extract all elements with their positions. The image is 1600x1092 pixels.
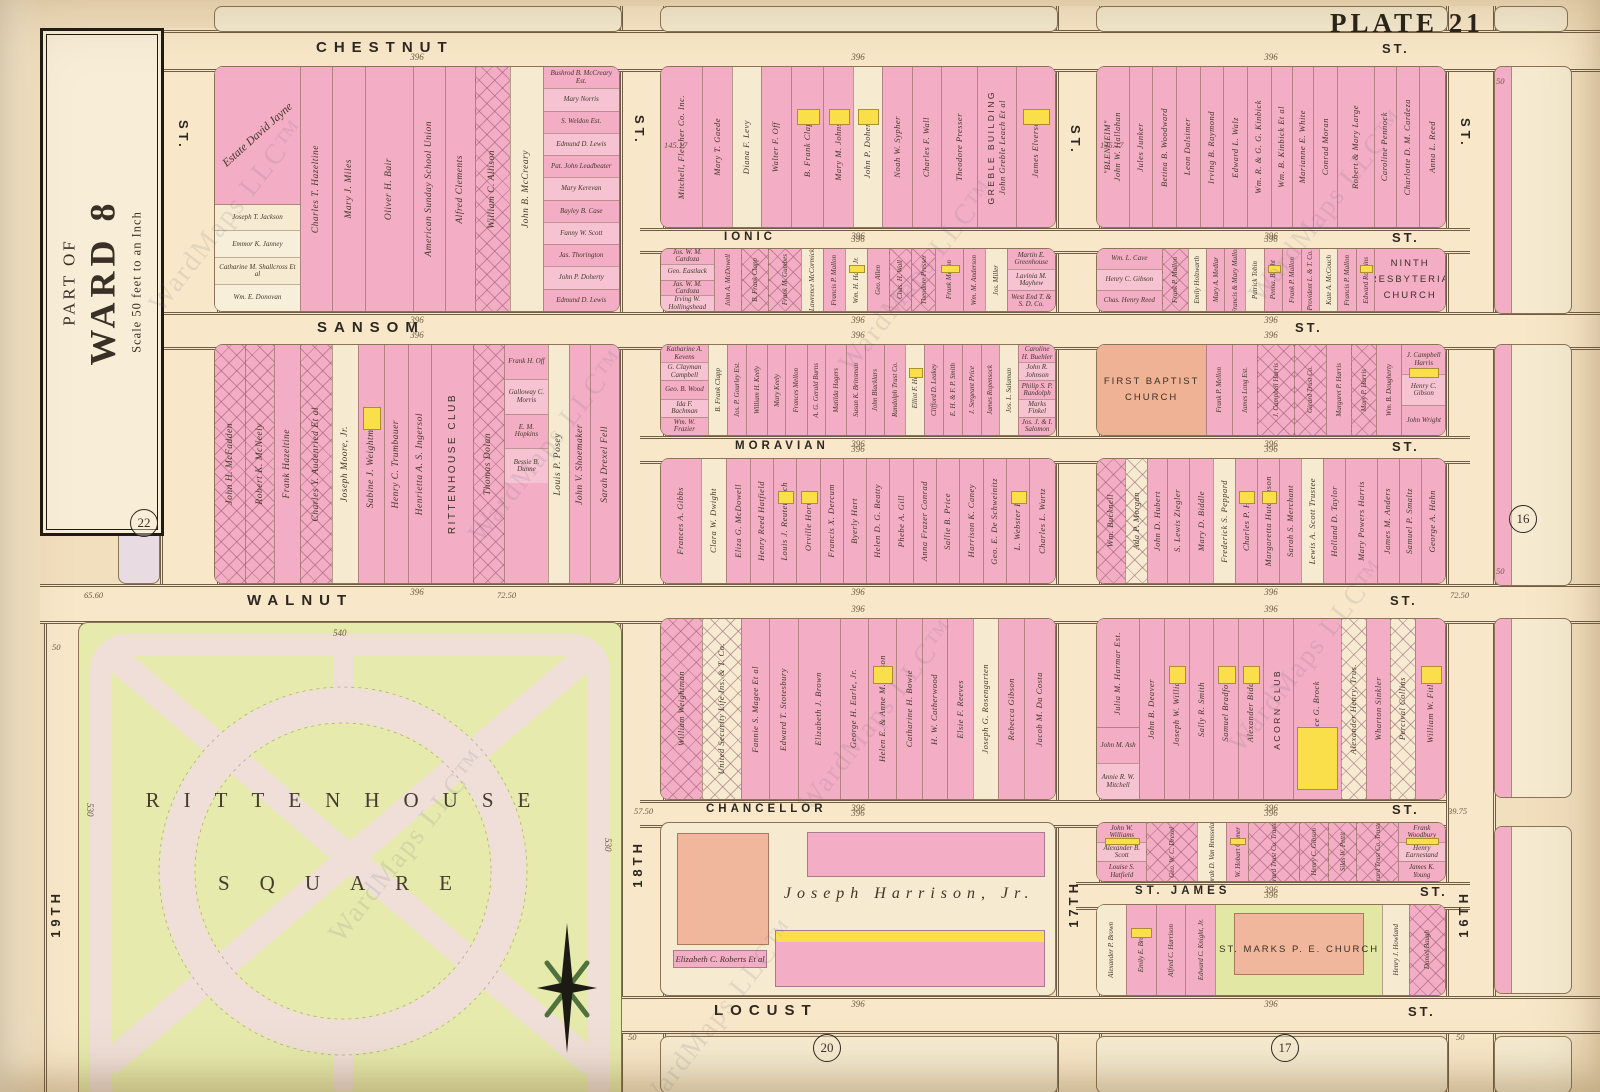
lot: Girard Trust Co. Trustees [1248,823,1298,881]
adjacent-plate-south-east: 17 [1271,1034,1299,1062]
lot-owner-label: J. Campbell Harris [1272,363,1280,417]
block-dimension: 396 [851,999,865,1009]
lot: Mary P. Harris [1351,345,1376,435]
lot: Frances A. Gibbs [661,459,701,583]
block-dimension: 396 [1264,444,1278,454]
lot-owner-label: George A. Hahn [1428,490,1438,552]
lot-owner-label: Harrison K. Caney [967,484,977,557]
lot: Samuel P. Smaltz [1399,459,1421,583]
sliver-block [660,1036,1058,1092]
sliver-block [1494,1036,1572,1092]
lot: Marianne E. White [1292,67,1313,227]
lot: Alexander Henry, Trus. [1341,619,1366,799]
lot-owner-label: Annie R. W. Mitchell [1097,763,1139,799]
lot: Provident L. & T. Co. [1301,249,1319,311]
lot-owner-label: James Ropensock [986,365,994,415]
lot: S. Lewis Ziegler [1167,459,1189,583]
lot: Sarah S. Merchant [1279,459,1301,583]
lot-owner-label: Alexander Biddle [1246,675,1256,742]
lot-owner-label: Wm. B. Dougherty [1385,364,1393,416]
lot-owner-label: Frank P. Mellon [1215,367,1223,413]
lot: Margaretta Hutchinson [1257,459,1279,583]
lot-owner-label: Frank M. Gumbes [781,254,789,305]
lot-owner-label: Frank Mallon [945,260,953,299]
lot: Edward Robbins [1356,249,1374,311]
lot: William W. Fitler [1415,619,1445,799]
lot-owner-label: Frank P. Mallon [1288,257,1296,303]
lot: Mary Powers Harris [1345,459,1376,583]
lot: Estate David Jayne [215,67,300,205]
compass-rose-icon [535,923,599,1053]
lot-owner-label: Mary Keely [773,374,781,407]
lot: Clifford D. Leakey [924,345,943,435]
lot-owner-label: Patrick Tobin [1251,261,1259,299]
lot-owner-label: Irving W. Hollingshead [661,295,714,311]
lot-owner-label: S. Weldon Est. [544,111,619,133]
lot: Frederick S. Peppard [1213,459,1235,583]
lot: Diana F. Levy [732,67,761,227]
lot-owner-label: Catharine H. Bowie [905,670,915,747]
lot-owner-label: G. Clayman Campbell [661,362,708,380]
lot-owner-label: Charles Y. Audenried Et al [311,407,322,522]
lot: Joseph G. Rosengarten [973,619,999,799]
lot-owner-label: Walter F. Off [771,122,781,172]
lot-owner-label: United Security Life Ins. & T. Co. [717,643,727,774]
lot-owner-label: L. Webster Fox [1013,492,1023,550]
lot-owner-label: Eliza G. McDowell [734,484,744,558]
lot: Walter F. Off [761,67,790,227]
street-label-16th-st: ST. [1458,118,1473,149]
block-moravian-walnut-e: Wm. BucknellAda P. MorganJohn D. HubertS… [1096,458,1446,584]
lot-owner-label: Silas W. Pettit [1339,832,1347,871]
lot-owner-label: James Long Est. [1241,367,1249,413]
lot-owner-label: Edward C. Knight, Jr. [1197,919,1205,980]
lot-owner-label: William Weightman [677,671,687,746]
harrison-mansion-footprint [677,833,770,945]
lot-owner-label: John W. Williams [1097,823,1146,842]
lot: James Ropensock [981,345,1000,435]
street-dimension: 39.75 [1448,806,1467,816]
lot-owner-label: Thomas Dolan [483,433,494,495]
lot: Elsie F. Reeves [947,619,973,799]
lot: Alexander Biddle [1238,619,1263,799]
lot: Anna L. Reed [1419,67,1445,227]
lot-owner-label: John M. Ash [1097,728,1139,763]
lot-owner-label: Wm. H. Hart, Jr. [852,257,860,303]
lot: Conrad Moran [1313,67,1337,227]
lot: Leon Dalsimer [1176,67,1200,227]
lot-owner-label: American Sunday School Union [424,121,435,257]
lot-owner-label: Geo. W. C. Drexel [1168,827,1176,878]
street-label-ionic-st: ST. [1392,230,1420,245]
lot-owner-label: Sabine J. Weightman [366,419,377,508]
lot: J. Campbell HarrisHenry C. GibsonJohn Wr… [1401,345,1445,435]
adjacent-plate-south-mid: 20 [813,1034,841,1062]
lot-owner-label: Conrad Moran [1321,118,1331,175]
lot-owner-label: Penna. Bright [1269,260,1277,299]
lot-owner-label: Jos. P. Gourley Est. [733,362,741,417]
lot: Wm. M. Anderson [963,249,985,311]
sliver-block [1494,826,1572,994]
lot-owner-label: Diana F. Levy [742,120,752,174]
street-16th [1446,6,1496,1092]
lot-owner-label: GREBLE BUILDING [987,90,997,205]
plate-title: PLATE 21 [1330,8,1484,39]
lot: Byerly Hart [843,459,866,583]
lot-owner-label: Phebe A. Gill [897,495,907,547]
lot: Francis P. Mallon [1337,249,1355,311]
block-dimension: 396 [851,330,865,340]
lot-owner-label: Bessie B. Dunne [505,448,548,483]
lot: Theodore Presser [941,67,977,227]
lot-owner-label: Julia M. Harmar Est. [1113,632,1123,715]
lot-owner-label: Mary Norris [544,88,619,110]
lot: Sarah D. Van Rensselaer [1197,823,1226,881]
block-lots: Katharine A. KevensG. Clayman CampbellGe… [661,345,1055,435]
lot-owner-label: Orville Horwitz [804,490,814,551]
street-dimension: 72.50 [1450,590,1469,600]
lot: Joseph Moore, Jr. [332,345,358,583]
lot: Helen E. & Anne M. Wilson [868,619,896,799]
lot: Orville Horwitz [796,459,819,583]
lot-owner-label: Clifford D. Leakey [930,364,938,416]
block-dimension: 396 [1264,234,1278,244]
lot-owner-label: B. Frank Clapp [751,258,759,302]
park-name-line1: RITTENHOUSE [79,788,621,813]
lot: Henrietta A. S. Ingersol [408,345,432,583]
lot-owner-label: Samuel P. Smaltz [1405,488,1415,554]
lot: Charles L. Wurtz [1029,459,1055,583]
lot-owner-label: A. G. Gerald Burns [812,363,820,418]
block-lots: John H. McFaddenRobert K. McNeelyFrank H… [215,345,619,583]
lot-owner-label: Girard Trust Co. [1306,366,1314,413]
lot: John V. Shoemaker [569,345,590,583]
lot-owner-label: West End T. & S. D. Co. [1008,290,1055,311]
lot: Charles F. Wall [912,67,941,227]
lot-owner-label: Wm. Bucknell [1106,494,1116,547]
lot-owner-label: Wm. L. Cave [1097,249,1162,269]
block-sansom-moravian-e: FIRST BAPTIST CHURCHFrank P. MellonJames… [1096,344,1446,436]
lot-owner-label: ACORN CLUB [1273,669,1283,750]
lot-owner-label: Susan K. Brinsman [852,363,860,417]
lot: Alfred C. Harrison [1156,905,1186,995]
lot-owner-label: Oliver H. Bair [384,158,395,220]
lot: Frank P. Mallon [1162,249,1188,311]
lot: B. Frank Clapp [741,249,768,311]
lot-owner-label: E. M. Hopkins [505,414,548,449]
lot: Francis & Mary Mallon [1224,249,1245,311]
lot: American Sunday School Union [413,67,445,311]
lot: John A. McDowell [714,249,741,311]
lot-owner-label: Wharton Sinkler [1374,677,1384,740]
lot-owner-label: Joseph Moore, Jr. [340,426,351,502]
block-dimension: 396 [1264,808,1278,818]
lot: Clara W. Dwight [701,459,727,583]
lot: J. Sergeant Price [962,345,981,435]
lot-owner-label: Jos. L. Salaman [1005,368,1013,413]
lot-owner-label: Wm. B. Kinbick Et al [1277,106,1287,188]
lot: Sarah Drexel Fell [590,345,619,583]
lot: Anna Frazer Conrad [913,459,936,583]
lot-owner-label: Jos. Miller [992,265,1000,295]
lot: Mary D. Biddle [1189,459,1213,583]
block-lots: Wm. BucknellAda P. MorganJohn D. HubertS… [1097,459,1445,583]
lot: John D. Hubert [1147,459,1167,583]
lot: H. W. Catherwood [922,619,948,799]
lot: Henry J. Howland [1382,905,1409,995]
lot-owner-label: Mary P. Harris [1360,369,1368,411]
street-label-chancellor: CHANCELLOR [706,803,827,815]
lot: Caroline H. BuehlerJohn R. JohnsonPhilip… [1018,345,1055,435]
street-label-17th: 17TH [1066,880,1081,928]
lot-owner-label: Samuel Bradford [1221,676,1231,742]
block-moravian-walnut-mid: Frances A. GibbsClara W. DwightEliza G. … [660,458,1056,584]
street-label-walnut-st: ST. [1390,593,1418,608]
lot-owner-label: Alice G. Brock [1312,681,1322,738]
lot: Patrick Tobin [1245,249,1263,311]
lot: Fannie S. Magee Et al [741,619,769,799]
lot: James Long Est. [1232,345,1257,435]
lot: Caroline Pennock [1374,67,1395,227]
lot: Matilda Hagers [825,345,846,435]
lot-owner-label: Caroline H. Buehler [1019,345,1055,362]
lot-owner-label: John V. Shoemaker [575,424,586,505]
lot-owner-label: Leon Dalsimer [1183,118,1193,175]
lot-owner-label: B. Frank Clapp [803,117,813,177]
block-lots: Estate David JayneJoseph T. JacksonEmmor… [215,67,619,311]
block-chestnut-ionic-e: "BLENHEIM"John W. HallahanJules JunkerBe… [1096,66,1446,228]
lot-owner-label: Kate A. McCouch [1325,255,1333,305]
lot: Lewis A. Scott Trustee [1301,459,1323,583]
lot: B. Frank Clapp [791,67,824,227]
street-dimension: 57.50 [634,806,653,816]
lot-owner-label: John A. McDowell [724,254,732,306]
lot: Robert & Mary Large [1337,67,1374,227]
lot-owner-label: Chas. H. Wall [896,260,904,299]
lot: Wharton Sinkler [1366,619,1391,799]
lot: L. Webster Fox [1006,459,1029,583]
lot: Girard Trust Co. [1294,345,1325,435]
lot: Frank Mallon [935,249,962,311]
lot-owner-label: John D. Hubert [1153,491,1163,551]
lot: Edward T. Stotesbury [769,619,797,799]
lot: Estate David JayneJoseph T. JacksonEmmor… [215,67,300,311]
ward-box-ward: WARD 8 [82,47,124,517]
lot: Harrison K. Caney [959,459,982,583]
lot: James Elverson [1016,67,1055,227]
lot: Emily Holzwarth [1188,249,1206,311]
ward-box-scale: Scale 50 feet to an Inch [130,47,145,517]
lot-owner-label: Bushrod B. McCreary Est. [544,67,619,88]
lot-owner-label: Fanny W. Scott [544,222,619,244]
lot: Frank P. Mallon [1282,249,1300,311]
harrison-rowhouses-hatched [807,832,1045,877]
lot: Wm. L. CaveHenry C. GibsonChas. Henry Re… [1097,249,1162,311]
lot-owner-label: Henry C. Trumbauer [391,420,402,508]
lot-owner-label: Chas. Henry Reed [1097,290,1162,311]
lot-owner-label: Percival Collins [1398,677,1408,740]
lot-owner-label: Elizabeth J. Brown [814,672,824,746]
lot-owner-label: Louis P. Posey [553,433,564,496]
lot-owner-label: Matilda Hagers [832,368,840,413]
block-dimension: 396 [1264,52,1278,62]
lot-owner-label: Frank P. Mallon [1171,257,1179,303]
street-label-18th: 18TH [630,840,645,888]
street-dimension: 50 [1496,566,1505,576]
lot-owner-label: Elliot F. Hart [911,371,919,408]
lot-owner-label: John Greble Leach Et al [998,100,1008,195]
lot: Randolph Trust Co. [884,345,905,435]
lot: Bushrod B. McCreary Est.Mary NorrisS. We… [543,67,619,311]
lot: Susan K. Brinsman [846,345,865,435]
sliver-lot [1495,619,1512,797]
lot: Mary A. Medlar [1206,249,1224,311]
sliver-block [214,6,622,32]
lot: Eliza G. McDowell [726,459,749,583]
street-label-moravian: MORAVIAN [735,440,829,452]
lot: E. H. & F. P. Smith [943,345,962,435]
block-dimension: 396 [410,587,424,597]
lot-owner-label: Ada P. Morgan [1132,492,1142,550]
lot: Mary T. Gaede [702,67,731,227]
lot-owner-label: Frances A. Gibbs [676,487,686,555]
lot-owner-label: John B. Deaver [1147,679,1157,739]
block-lots: Mitchell, Fletcher Co. Inc.Mary T. Gaede… [661,67,1055,227]
lot-owner-label: George H. Earle, Jr. [849,669,859,748]
ward-box-part-of: PART OF [60,47,80,517]
block-sansom-walnut-w: John H. McFaddenRobert K. McNeelyFrank H… [214,344,620,584]
lot-owner-label: Robert K. McNeely [255,423,266,505]
sliver-block [1494,344,1572,586]
lot-owner-label: James Elverson [1031,117,1041,178]
lot-owner-label: Holland D. Taylor [1330,486,1340,557]
street-dimension: 50 [628,1032,637,1042]
street-label-chancellor-st: ST. [1392,802,1420,817]
lot-owner-label: Henry C. Gibson [1310,828,1318,876]
lot: Mary Keely [767,345,786,435]
block-chestnut-ionic-mid: Mitchell, Fletcher Co. Inc.Mary T. Gaede… [660,66,1056,228]
lot: Wm. R. & G. G. Kinbick [1247,67,1271,227]
lot: Edward L. Walz [1223,67,1247,227]
street-dimension: 145.17 [664,140,687,150]
street-label-chestnut-st: ST. [1382,41,1410,56]
street-dimension: 50 [1456,1032,1465,1042]
lot-owner-label: James K. Young [1399,861,1445,881]
lot: George A. Hahn [1421,459,1445,583]
lot-owner-label: Helen E. & Anne M. Wilson [878,655,888,762]
lot: Alfred Clements [445,67,474,311]
lot-owner-label: Bayley B. Case [544,200,619,222]
sliver-block [660,6,1058,32]
street-dimension: 50 [52,642,61,652]
lot-owner-label: Jacob M. Da Costa [1035,672,1045,747]
lot: Frank WoodburyHenry EarnestandJames K. Y… [1398,823,1445,881]
block-dimension: 396 [1264,890,1278,900]
lot-owner-label: Edward L. Walz [1231,117,1241,178]
lot: Joseph W. Williams [1164,619,1189,799]
lot-owner-label: Sally R. Smith [1197,682,1207,737]
lot: Lawrence McCormick [801,249,823,311]
lot: Julia M. Harmar Est. [1097,619,1139,728]
lot: Wm. H. Hart, Jr. [845,249,867,311]
block-stjames-locust-e: Alexander P. BrownEmily E. BrownAlfred C… [1096,904,1446,996]
adjacent-plate-east: 16 [1509,505,1537,533]
street-label-locust-st: ST. [1408,1004,1436,1019]
lot-owner-label: Alexander B. Scott [1097,842,1146,862]
lot-owner-label: Frank H. Off [505,345,548,379]
block-lots: Jos. W. M. CardozaGeo. EastlackJas. W. M… [661,249,1055,311]
lot: Charles T. Hazeltine [300,67,332,311]
lot-owner-label: Charles L. Wurtz [1038,488,1048,554]
lot-owner-label: Lavinia M. Mayhew [1008,269,1055,290]
lot-owner-label: Henry C. Gibson [1402,374,1445,404]
lot: Jos. P. Gourley Est. [727,345,746,435]
lot-owner-label: William W. Fitler [1426,676,1436,743]
park-name-line2: SQUARE [79,871,621,896]
lot: Geo. W. C. Drexel [1146,823,1196,881]
lot-owner-label: Geo. E. De Schweinitz [990,478,1000,565]
lot: Frank P. Mellon [1206,345,1231,435]
block-lots: Wm. L. CaveHenry C. GibsonChas. Henry Re… [1097,249,1445,311]
lot: George H. Earle, Jr. [840,619,868,799]
block-dimension: 396 [851,444,865,454]
lot: John H. McFadden [215,345,245,583]
ward-title-box: PART OF WARD 8 Scale 50 feet to an Inch [40,28,164,536]
lot: Sally R. Smith [1189,619,1214,799]
park-dimension-east: 530 [603,838,613,852]
lot: B. Frank Clapp [708,345,727,435]
lot-owner-label: W. Hobart Gilmer [1234,827,1242,878]
lot: Henry Reed Hatfield [750,459,773,583]
lot: John Blacklars [865,345,884,435]
street-label-17th-st: ST. [1068,125,1083,156]
lot-owner-label: Geo. B. Wood [661,380,708,398]
lot: Margaret P. Harris [1326,345,1351,435]
harrison-owner-label: Joseph Harrison, Jr. [771,885,1047,903]
lot: Alexander P. Brown [1097,905,1126,995]
lot: Mary M. Johnson [823,67,852,227]
lot-owner-label: Girard Trust Co. Trustees [1374,823,1382,881]
lot: Ada P. Morgan [1125,459,1147,583]
lot-owner-label: Edward Robbins [1362,257,1370,304]
street-label-chestnut: CHESTNUT [316,39,454,56]
lot-owner-label: Emmor K. Janney [215,230,300,257]
lot-owner-label: Philip S. P. Randolph [1019,380,1055,398]
lot: Oliver H. Bair [365,67,413,311]
lot: Sallie B. Price [936,459,959,583]
street-label-locust: LOCUST [714,1002,818,1019]
lot-owner-label: Henry Reed Hatfield [757,481,767,561]
lot-owner-label: William H. Keely [753,366,761,414]
lot-owner-label: RITTENHOUSE CLUB [447,393,459,534]
block-dimension: 396 [851,587,865,597]
block-lots: Julia M. Harmar Est.John M. AshAnnie R. … [1097,619,1445,799]
lot-owner-label: Edward T. Stotesbury [779,668,789,751]
sliver-block [1494,66,1572,314]
lot: United Security Life Ins. & T. Co. [702,619,741,799]
block-ionic-sansom-e: Wm. L. CaveHenry C. GibsonChas. Henry Re… [1096,248,1446,312]
block-lots: Frances A. GibbsClara W. DwightEliza G. … [661,459,1055,583]
block-chancellor-stjames-e: John W. WilliamsAlexander B. ScottLouise… [1096,822,1446,882]
lot-owner-label: Geo. Allen [874,265,882,295]
lot: Francis X. Dercum [820,459,843,583]
lot-owner-label: Wm. W. Frazier [661,417,708,435]
street-label-ionic: IONIC [724,231,776,243]
lot-owner-label: Joseph W. Williams [1172,671,1182,746]
lot-owner-label: Theodore Presser [920,255,928,304]
lot: Chas. H. Wall [889,249,911,311]
lot-owner-label: Francis P. Mallon [1343,255,1351,306]
